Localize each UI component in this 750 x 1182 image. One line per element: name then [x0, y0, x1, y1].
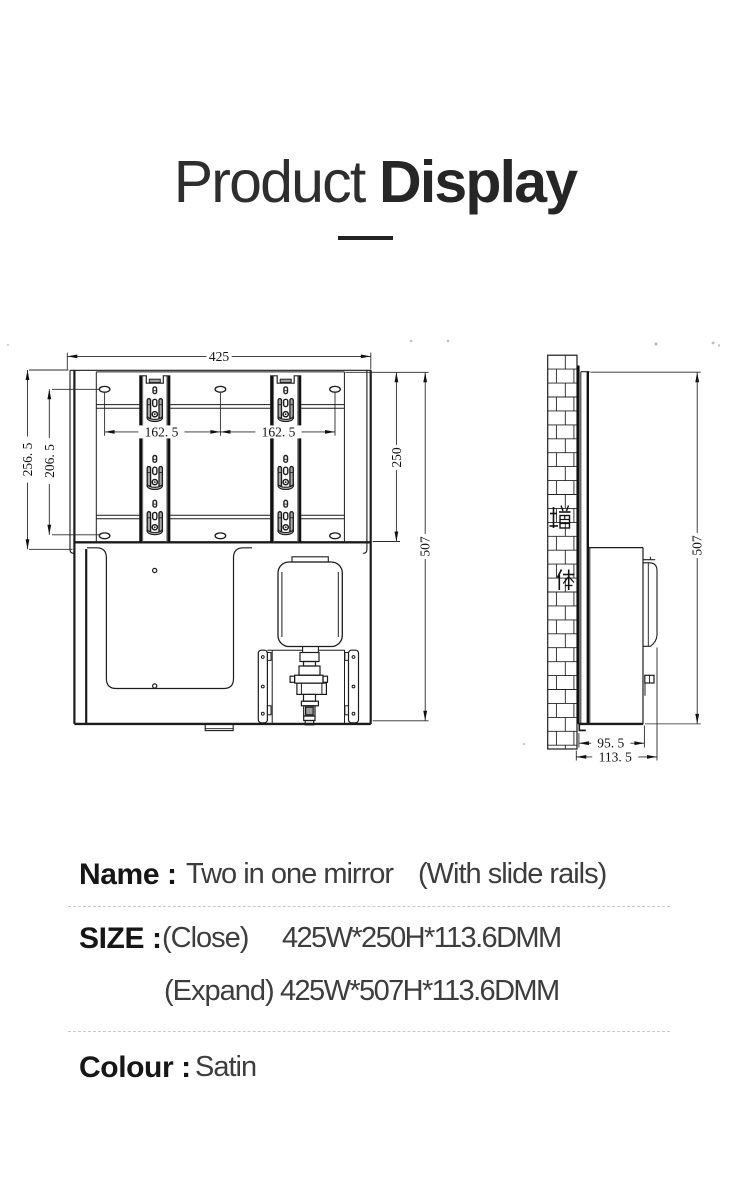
- svg-text:250: 250: [389, 447, 404, 468]
- svg-text:113. 5: 113. 5: [599, 749, 632, 764]
- svg-text:162. 5: 162. 5: [262, 424, 296, 439]
- svg-text:206. 5: 206. 5: [42, 444, 57, 478]
- svg-text:256. 5: 256. 5: [20, 442, 35, 476]
- svg-text:507: 507: [690, 535, 705, 556]
- svg-text:162. 5: 162. 5: [145, 424, 179, 439]
- svg-text:425: 425: [209, 349, 230, 364]
- svg-text:507: 507: [418, 536, 433, 557]
